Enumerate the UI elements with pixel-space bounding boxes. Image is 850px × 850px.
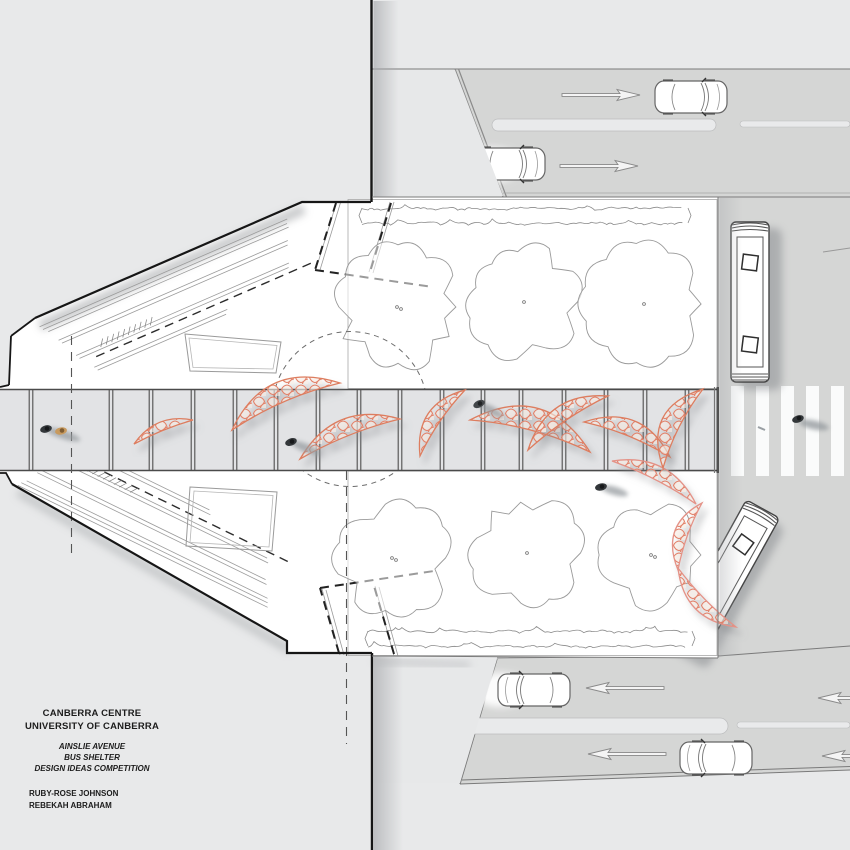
lane-line-top-right	[740, 121, 850, 127]
lane-median-bottom	[458, 718, 728, 734]
car-westbound	[498, 671, 570, 709]
site-plan-canvas: CANBERRA CENTRE UNIVERSITY OF CANBERRA A…	[0, 0, 850, 850]
car-westbound	[680, 739, 752, 777]
site-name-line: CANBERRA CENTRE	[16, 708, 168, 721]
site-name-line: UNIVERSITY OF CANBERRA	[16, 721, 168, 734]
lane-median-top	[492, 119, 716, 131]
edge-shadow	[374, 656, 403, 850]
edge-shadow	[374, 1, 399, 201]
title-block: CANBERRA CENTRE UNIVERSITY OF CANBERRA A…	[16, 708, 168, 812]
edge-shadow	[720, 198, 743, 656]
project-title-line: DESIGN IDEAS COMPETITION	[16, 764, 168, 775]
project-title-line: AINSLIE AVENUE	[16, 742, 168, 753]
author-name: REBEKAH ABRAHAM	[29, 800, 168, 812]
project-title-line: BUS SHELTER	[16, 753, 168, 764]
lane-line-bottom-right	[737, 722, 850, 728]
car-eastbound	[655, 78, 727, 116]
author-name: RUBY-ROSE JOHNSON	[29, 788, 168, 800]
